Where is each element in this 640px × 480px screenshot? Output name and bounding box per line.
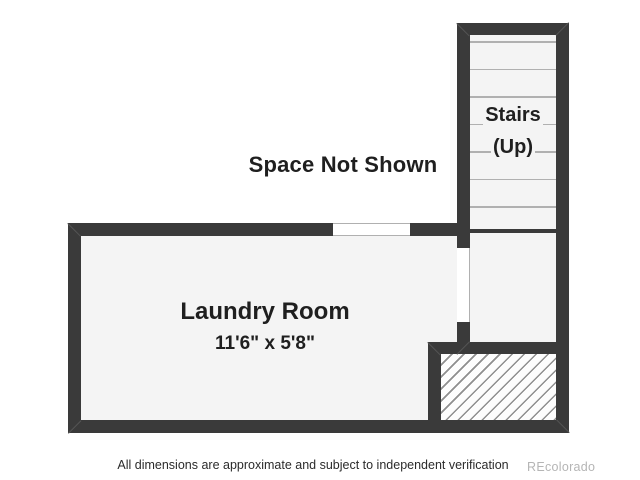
stairs-label-line1: Stairs [483, 102, 543, 128]
stairs-label-line2: (Up) [491, 134, 535, 160]
laundry-left-wall [68, 223, 81, 433]
stair-step-line [470, 179, 556, 181]
stairs-top-wall [457, 23, 569, 35]
stair-step-line [470, 41, 556, 43]
storage-top-wall [428, 342, 569, 354]
storage-hatched-area [441, 354, 556, 420]
stair-step-line [470, 96, 556, 98]
stairs-landing-divider-wall [457, 229, 569, 233]
stairs-label: Stairs (Up) [468, 99, 558, 163]
space-not-shown-label: Space Not Shown [203, 151, 483, 179]
storage-left-wall [428, 342, 441, 433]
laundry-room-dimensions: 11'6" x 5'8" [105, 332, 425, 356]
laundry-window-opening [333, 223, 410, 236]
watermark-text: REcolorado [527, 460, 595, 474]
stair-step-line [470, 206, 556, 208]
bottom-wall [68, 420, 569, 433]
stairs-right-wall [556, 23, 569, 433]
laundry-room-label-group: Laundry Room 11'6" x 5'8" [105, 297, 425, 356]
stair-step-line [470, 69, 556, 71]
floorplan-canvas: Space Not Shown Stairs (Up) Laundry Room… [0, 0, 640, 480]
stairs-landing-area [470, 233, 556, 342]
disclaimer-text: All dimensions are approximate and subje… [113, 458, 513, 472]
laundry-room-label: Laundry Room [105, 297, 425, 327]
laundry-landing-door-opening [457, 248, 470, 322]
